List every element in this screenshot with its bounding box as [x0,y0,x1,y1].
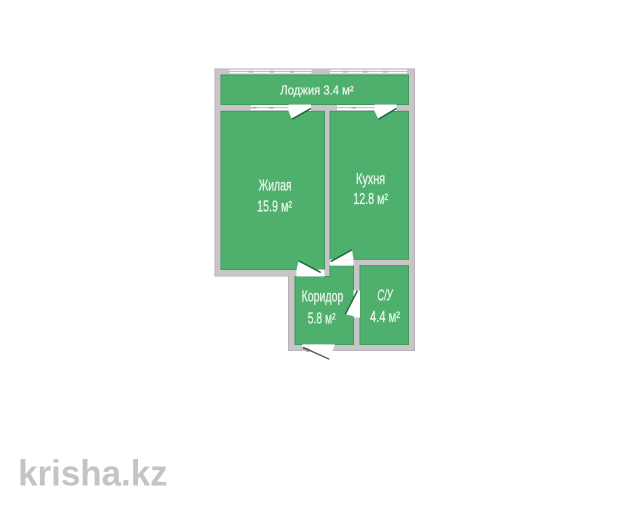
svg-text:4.4 м²: 4.4 м² [370,309,400,326]
svg-text:12.8 м²: 12.8 м² [353,191,388,208]
svg-text:Лоджия 3.4 м²: Лоджия 3.4 м² [280,83,353,97]
svg-text:Коридор: Коридор [302,289,344,306]
svg-text:krisha.kz: krisha.kz [18,453,168,494]
svg-text:5.8 м²: 5.8 м² [308,310,336,327]
svg-text:С/У: С/У [377,288,393,305]
svg-text:Кухня: Кухня [356,171,385,188]
svg-text:15.9 м²: 15.9 м² [257,198,292,215]
svg-text:Жилая: Жилая [259,178,292,195]
